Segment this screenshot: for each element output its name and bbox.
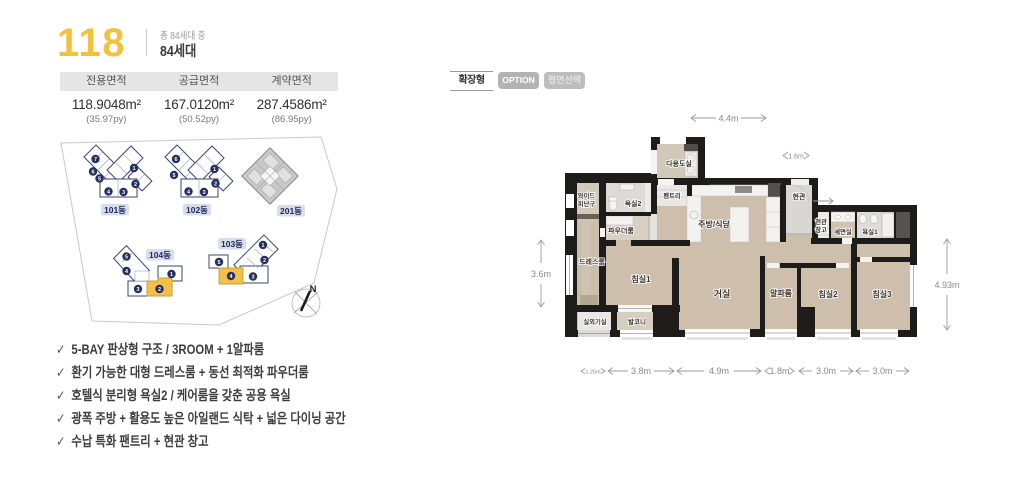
- svg-text:1: 1: [132, 166, 135, 172]
- svg-text:파우더룸: 파우더룸: [608, 226, 634, 235]
- svg-text:욕실2: 욕실2: [625, 199, 642, 208]
- svg-text:5: 5: [217, 260, 220, 266]
- svg-text:2: 2: [214, 182, 217, 188]
- svg-text:102동: 102동: [186, 205, 208, 215]
- svg-text:N: N: [310, 284, 317, 295]
- svg-text:알파룸: 알파룸: [770, 288, 793, 298]
- svg-text:3: 3: [202, 190, 205, 196]
- svg-text:와이드: 와이드: [578, 191, 596, 200]
- svg-text:1: 1: [213, 167, 216, 173]
- svg-text:3.0m: 3.0m: [816, 366, 836, 376]
- svg-text:실외기실: 실외기실: [583, 317, 606, 326]
- svg-text:5: 5: [125, 255, 128, 261]
- svg-text:7: 7: [94, 157, 97, 163]
- svg-text:발코니: 발코니: [628, 317, 646, 326]
- svg-text:4.9m: 4.9m: [709, 366, 729, 376]
- svg-text:다용도실: 다용도실: [666, 159, 692, 168]
- svg-text:창고: 창고: [815, 225, 827, 234]
- svg-text:4.4m: 4.4m: [718, 114, 738, 124]
- svg-text:2: 2: [158, 287, 161, 293]
- svg-text:3.6m: 3.6m: [531, 269, 551, 279]
- svg-text:1.25m: 1.25m: [585, 370, 601, 376]
- svg-text:1.8m: 1.8m: [769, 366, 789, 376]
- svg-text:5: 5: [172, 173, 175, 179]
- svg-text:침실3: 침실3: [872, 289, 892, 299]
- svg-text:3.0m: 3.0m: [872, 366, 892, 376]
- svg-text:3.8m: 3.8m: [631, 366, 651, 376]
- svg-text:욕실1: 욕실1: [862, 227, 878, 236]
- svg-text:주방/식당: 주방/식당: [698, 219, 730, 229]
- svg-text:2: 2: [263, 258, 266, 264]
- svg-text:피난구: 피난구: [578, 199, 596, 208]
- svg-text:세면실: 세면실: [834, 227, 852, 236]
- svg-text:201동: 201동: [280, 206, 302, 216]
- svg-text:4.93m: 4.93m: [934, 280, 959, 290]
- svg-text:현관: 현관: [815, 217, 827, 226]
- svg-text:103동: 103동: [221, 239, 243, 249]
- svg-text:현관: 현관: [793, 192, 806, 201]
- svg-text:3: 3: [251, 275, 254, 281]
- svg-text:6: 6: [91, 170, 94, 176]
- svg-text:침실1: 침실1: [631, 274, 651, 284]
- svg-text:3: 3: [136, 287, 139, 293]
- svg-text:침실2: 침실2: [818, 289, 838, 299]
- svg-text:1: 1: [170, 272, 173, 278]
- svg-text:104동: 104동: [149, 250, 171, 260]
- svg-text:6: 6: [174, 157, 177, 163]
- svg-text:거실: 거실: [714, 288, 731, 299]
- svg-text:2: 2: [134, 182, 137, 188]
- svg-text:5: 5: [98, 177, 101, 183]
- svg-text:3: 3: [122, 190, 125, 196]
- svg-text:펜트리: 펜트리: [663, 191, 681, 200]
- svg-text:드레스룸: 드레스룸: [579, 257, 605, 266]
- svg-text:1.6m: 1.6m: [788, 154, 804, 161]
- svg-text:1: 1: [261, 243, 264, 249]
- svg-text:101동: 101동: [104, 205, 126, 215]
